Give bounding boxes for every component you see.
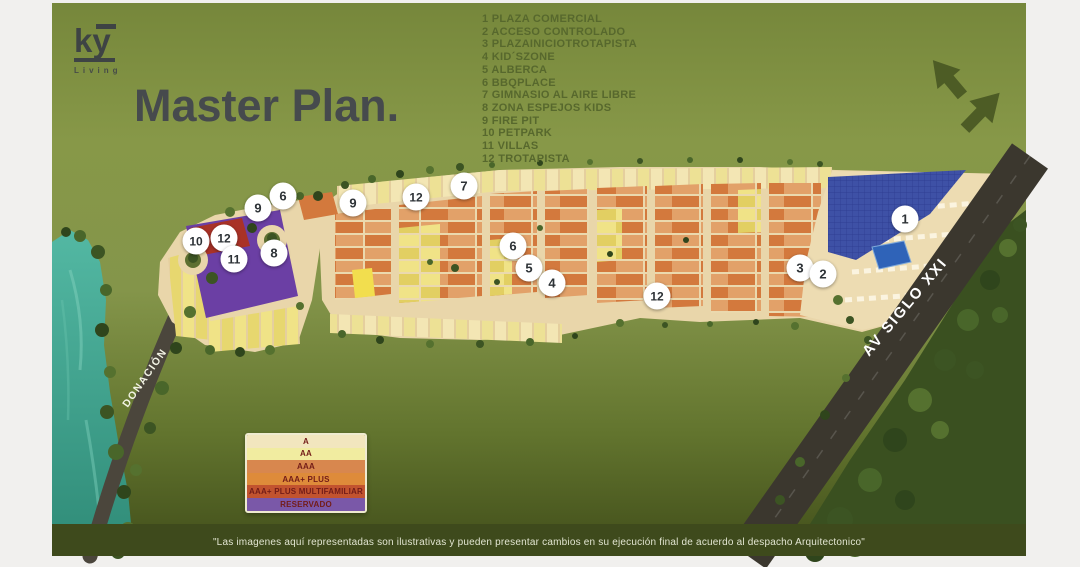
lot-legend-row: AA bbox=[247, 448, 365, 461]
lot-legend-row: A bbox=[247, 435, 365, 448]
map-marker-7: 7 bbox=[451, 173, 478, 200]
lot-type-legend: AAAAAAAAA+ PLUSAAA+ PLUS MULTIFAMILIARRE… bbox=[245, 433, 367, 513]
master-plan-canvas: ky Living Master Plan. 1 PLAZA COMERCIAL… bbox=[0, 0, 1080, 567]
map-marker-2: 2 bbox=[810, 261, 837, 288]
lot-legend-row: AAA+ PLUS bbox=[247, 473, 365, 486]
map-marker-12: 12 bbox=[644, 283, 671, 310]
lot-legend-row: RESERVADO bbox=[247, 498, 365, 511]
lot-legend-row: AAA+ PLUS MULTIFAMILIAR bbox=[247, 485, 365, 498]
map-marker-12: 12 bbox=[403, 184, 430, 211]
map-marker-6: 6 bbox=[270, 183, 297, 210]
lot-legend-row: AAA bbox=[247, 460, 365, 473]
map-marker-9: 9 bbox=[340, 190, 367, 217]
map-marker-8: 8 bbox=[261, 240, 288, 267]
map-marker-4: 4 bbox=[539, 270, 566, 297]
map-marker-9: 9 bbox=[245, 195, 272, 222]
map-marker-10: 10 bbox=[183, 228, 210, 255]
map-marker-1: 1 bbox=[892, 206, 919, 233]
map-marker-11: 11 bbox=[221, 246, 248, 273]
disclaimer-text: "Las imagenes aquí representadas son ilu… bbox=[52, 537, 1026, 548]
